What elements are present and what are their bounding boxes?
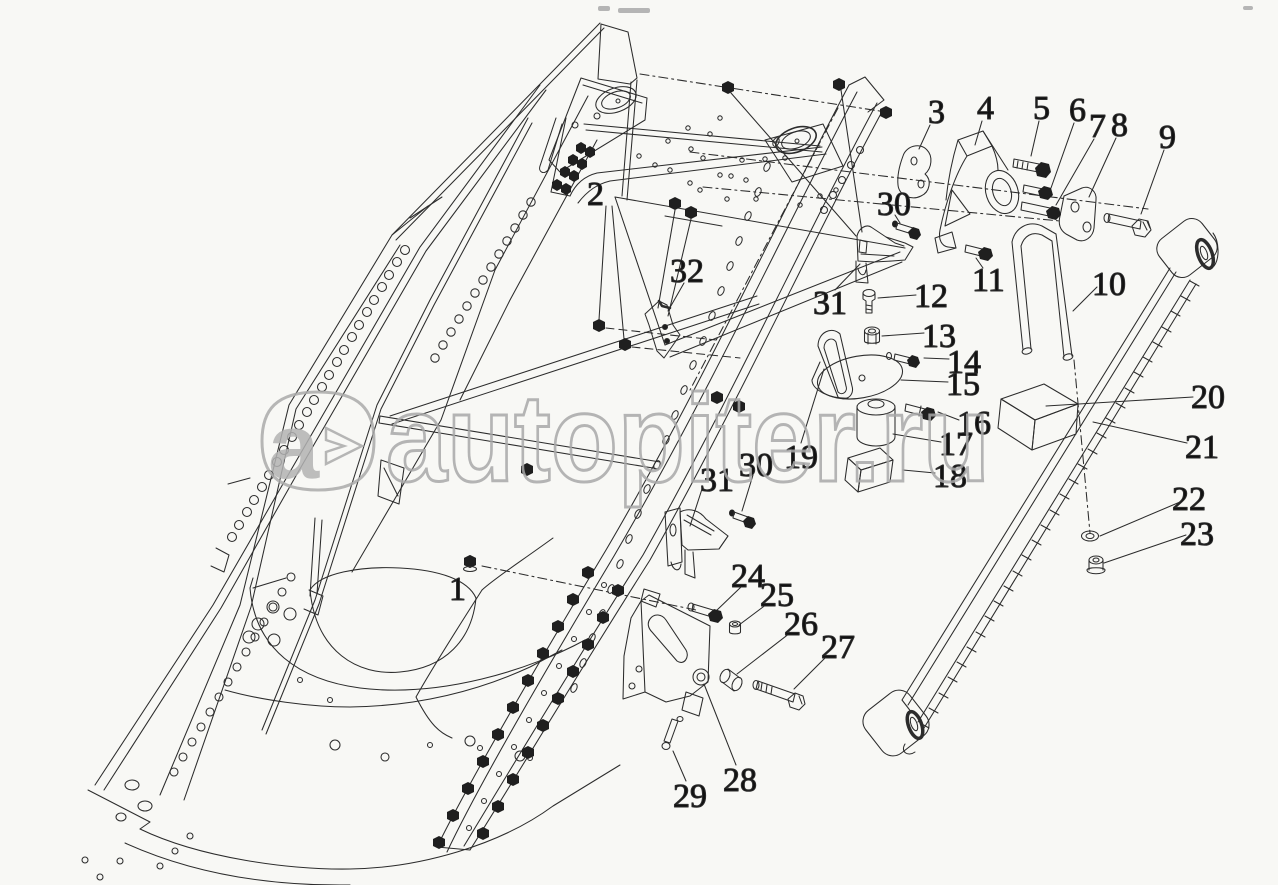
svg-text:11: 11 <box>972 262 1005 299</box>
svg-text:30: 30 <box>877 186 911 223</box>
svg-text:31: 31 <box>813 285 847 322</box>
svg-text:autopiter.ru: autopiter.ru <box>386 370 990 508</box>
svg-text:26: 26 <box>784 606 818 643</box>
svg-text:27: 27 <box>821 629 855 666</box>
svg-text:21: 21 <box>1185 429 1219 466</box>
svg-text:3: 3 <box>928 94 945 131</box>
svg-text:12: 12 <box>914 278 948 315</box>
svg-text:22: 22 <box>1172 481 1206 518</box>
svg-text:a: a <box>268 396 320 498</box>
svg-text:20: 20 <box>1191 379 1225 416</box>
svg-text:6: 6 <box>1069 92 1086 129</box>
svg-text:28: 28 <box>723 762 757 799</box>
svg-text:4: 4 <box>977 90 994 127</box>
svg-text:8: 8 <box>1111 107 1128 144</box>
svg-text:9: 9 <box>1159 119 1176 156</box>
svg-text:5: 5 <box>1033 90 1050 127</box>
svg-text:7: 7 <box>1089 108 1106 145</box>
svg-text:1: 1 <box>449 571 466 608</box>
svg-text:10: 10 <box>1092 266 1126 303</box>
svg-text:2: 2 <box>587 176 604 213</box>
svg-text:29: 29 <box>673 778 707 815</box>
svg-text:32: 32 <box>670 253 704 290</box>
svg-text:23: 23 <box>1180 516 1214 553</box>
